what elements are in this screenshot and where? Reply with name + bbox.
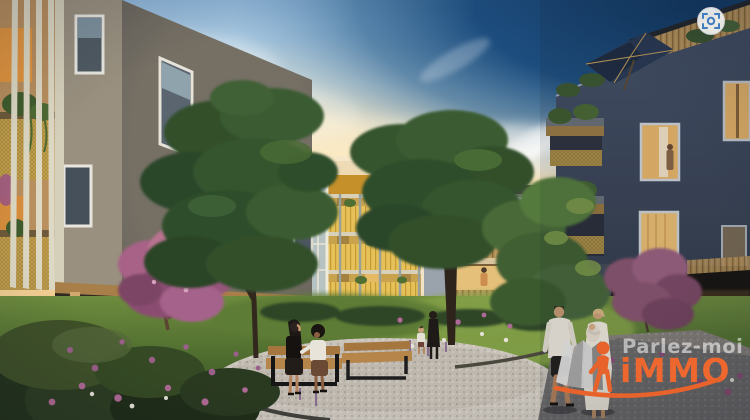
architectural-render: Parlez-moi iMMO: [0, 0, 750, 420]
watermark-brand: iMMO: [620, 351, 731, 390]
watermark-logo: Parlez-moi iMMO: [556, 335, 743, 396]
viewer-360-button[interactable]: [698, 8, 725, 35]
